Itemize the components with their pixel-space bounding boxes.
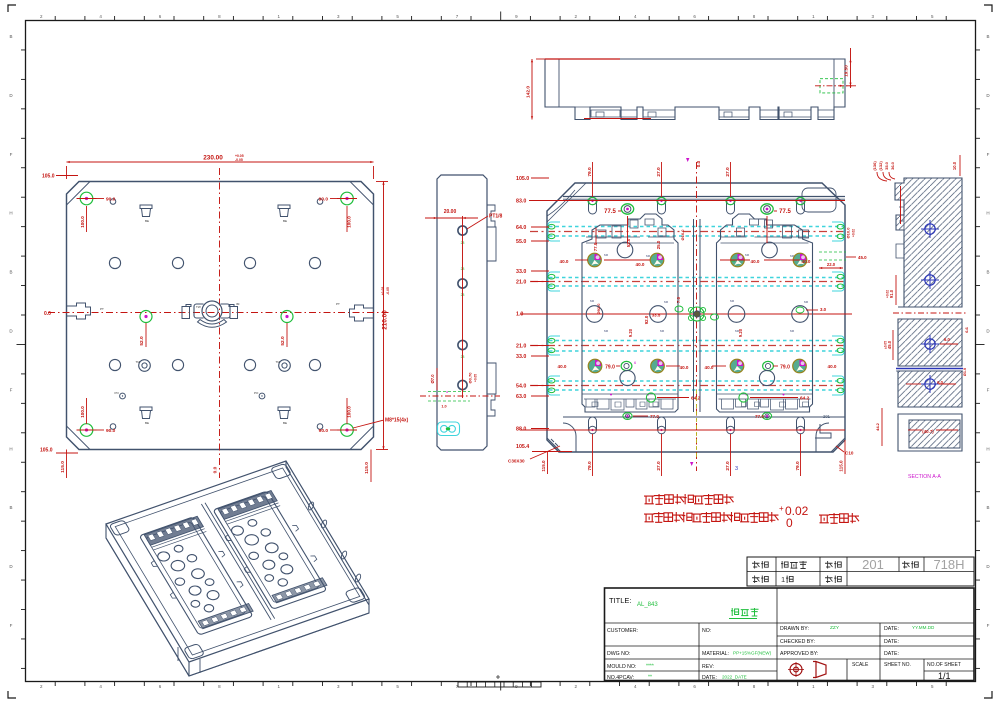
svg-text:6.0: 6.0 [944, 337, 950, 342]
svg-text:DWG NO:: DWG NO: [607, 651, 630, 657]
svg-text:YY.MM.DD: YY.MM.DD [912, 625, 935, 630]
svg-text:91.0: 91.0 [889, 289, 894, 298]
svg-text:F: F [10, 387, 13, 392]
svg-text:M6: M6 [804, 300, 808, 304]
svg-text:40.0: 40.0 [558, 364, 567, 369]
svg-text:22.0: 22.0 [827, 262, 836, 267]
svg-text:64.0: 64.0 [516, 225, 526, 231]
svg-text:79.0: 79.0 [587, 167, 593, 177]
svg-text:201: 201 [862, 557, 884, 572]
svg-text:27.0: 27.0 [656, 167, 662, 177]
svg-text:H: H [9, 211, 12, 216]
svg-text:27.0: 27.0 [656, 461, 662, 471]
svg-text:6.6: 6.6 [964, 326, 969, 332]
svg-text:M6: M6 [660, 329, 664, 333]
svg-text:**: ** [648, 675, 652, 681]
svg-text:M6: M6 [790, 254, 794, 258]
svg-text:0.0: 0.0 [213, 466, 219, 473]
svg-text:M6: M6 [790, 329, 794, 333]
svg-text:115.0: 115.0 [364, 462, 370, 474]
svg-text:B: B [986, 270, 989, 275]
svg-text:H: H [986, 211, 989, 216]
svg-text:F: F [987, 152, 990, 157]
svg-text:SHEET NO.: SHEET NO. [884, 662, 911, 668]
svg-text:7.0: 7.0 [676, 296, 681, 303]
svg-text:79.0: 79.0 [780, 364, 790, 370]
svg-text:(40.7): (40.7) [922, 429, 934, 434]
svg-text:3.0: 3.0 [820, 307, 827, 312]
svg-text:BE: BE [145, 219, 149, 223]
svg-text:40.0: 40.0 [802, 259, 811, 264]
svg-text:Ø1.0: Ø1.0 [963, 368, 967, 376]
svg-text:+0.05: +0.05 [381, 287, 385, 296]
svg-text:90.0: 90.0 [319, 428, 329, 434]
svg-text:115.0: 115.0 [541, 460, 546, 472]
svg-text:(136): (136) [872, 161, 877, 171]
svg-text:ZZY: ZZY [830, 625, 840, 631]
svg-text:115.0: 115.0 [839, 460, 844, 472]
svg-text:Ø0.70: Ø0.70 [468, 372, 473, 384]
svg-text:44.2: 44.2 [875, 422, 880, 431]
svg-text:Ø7.0: Ø7.0 [430, 374, 435, 384]
svg-text:M6: M6 [735, 329, 739, 333]
svg-text:35.0: 35.0 [884, 161, 889, 170]
svg-text:64.2: 64.2 [691, 396, 701, 402]
svg-text:F: F [987, 623, 990, 628]
svg-text:TITLE:: TITLE: [609, 596, 632, 605]
svg-text:33.0: 33.0 [516, 354, 526, 360]
svg-text:M6: M6 [590, 299, 594, 303]
svg-text:DATE:: DATE: [884, 651, 899, 657]
svg-text:27.0: 27.0 [725, 461, 731, 471]
svg-text:105.4: 105.4 [516, 444, 529, 450]
svg-text:DRAWN BY:: DRAWN BY: [780, 626, 809, 632]
svg-text:105.0: 105.0 [42, 174, 55, 180]
svg-text:45.0: 45.0 [858, 255, 867, 260]
svg-text:77.5: 77.5 [779, 209, 791, 215]
svg-text:PP+15%GF(NEW): PP+15%GF(NEW) [733, 651, 772, 656]
svg-text:79.0: 79.0 [795, 461, 801, 471]
svg-text:77.0: 77.0 [593, 242, 598, 251]
svg-text:100.0: 100.0 [347, 216, 352, 228]
svg-text:SCALE: SCALE [852, 662, 869, 668]
svg-text:(132): (132) [878, 161, 883, 171]
svg-text:DATE:: DATE: [884, 639, 899, 645]
svg-text:77.0: 77.0 [650, 414, 659, 419]
svg-text:54.0: 54.0 [516, 384, 526, 390]
svg-text:M6: M6 [604, 329, 608, 333]
svg-text:105.0: 105.0 [516, 176, 529, 182]
svg-text:33.0: 33.0 [516, 269, 526, 275]
svg-text:40.0: 40.0 [828, 364, 837, 369]
svg-text:27.0: 27.0 [725, 167, 731, 177]
svg-text:MATERIAL:: MATERIAL: [702, 651, 729, 657]
svg-text:B: B [986, 505, 989, 510]
svg-text:1/1: 1/1 [938, 671, 951, 681]
svg-text:PT: PT [100, 307, 104, 311]
svg-text:1.0: 1.0 [441, 405, 446, 409]
svg-text:B: B [9, 505, 12, 510]
svg-text:90.0: 90.0 [106, 197, 116, 203]
svg-text:3: 3 [735, 466, 738, 472]
svg-text:B: B [986, 34, 989, 39]
svg-text:M6: M6 [745, 253, 749, 257]
svg-text:NO:: NO: [702, 628, 711, 634]
svg-text:M6: M6 [646, 254, 650, 258]
svg-text:52.0: 52.0 [280, 336, 286, 346]
svg-text:21.0: 21.0 [516, 344, 526, 350]
svg-text:100.0: 100.0 [347, 406, 352, 418]
svg-text:CHECKED BY:: CHECKED BY: [780, 639, 815, 645]
svg-text:1.0: 1.0 [516, 312, 523, 318]
svg-text:BE: BE [283, 219, 287, 223]
svg-text:90.0: 90.0 [319, 197, 329, 203]
svg-text:40.0: 40.0 [680, 365, 689, 370]
svg-text:1: 1 [781, 575, 785, 584]
svg-text:DATE:: DATE: [702, 675, 717, 681]
svg-text:M6: M6 [730, 299, 734, 303]
svg-text:PO: PO [254, 391, 259, 395]
svg-text:IM: IM [236, 302, 240, 306]
svg-text:B: B [9, 270, 12, 275]
svg-text:77.0: 77.0 [755, 414, 764, 419]
svg-text:9.20: 9.20 [628, 328, 633, 337]
svg-text:SECTION A-A: SECTION A-A [908, 474, 941, 480]
svg-text:40.0: 40.0 [560, 259, 569, 264]
svg-text:0.0: 0.0 [44, 311, 51, 317]
svg-text:33.5: 33.5 [652, 313, 661, 318]
svg-text:79.0: 79.0 [587, 461, 593, 471]
svg-text:AL_843: AL_843 [637, 602, 658, 608]
svg-text:F: F [987, 387, 990, 392]
svg-text:B: B [9, 34, 12, 39]
svg-text:19.50: 19.50 [844, 65, 849, 77]
svg-text:BE: BE [145, 421, 149, 425]
svg-text:92.0: 92.0 [644, 315, 649, 324]
svg-text:55.0: 55.0 [516, 239, 526, 245]
svg-text:-0.05: -0.05 [235, 158, 243, 162]
svg-text:REV:: REV: [702, 664, 714, 670]
svg-text:****: **** [646, 664, 654, 670]
svg-text:TW: TW [196, 305, 201, 309]
svg-text:-0.05: -0.05 [386, 287, 390, 295]
svg-text:Ø10.0: Ø10.0 [846, 227, 851, 239]
svg-text:21.0: 21.0 [516, 280, 526, 286]
svg-text:40.0: 40.0 [751, 259, 760, 264]
svg-text:230.00: 230.00 [203, 155, 223, 162]
svg-text:NO.OF SHEET: NO.OF SHEET [927, 662, 961, 668]
svg-text:H: H [9, 446, 12, 451]
svg-text:0: 0 [786, 516, 793, 530]
svg-text:Ø10.0: Ø10.0 [680, 229, 685, 241]
svg-text:100.0: 100.0 [80, 406, 85, 418]
svg-text:F: F [10, 623, 13, 628]
svg-text:45.0: 45.0 [887, 340, 892, 349]
svg-text:90.0: 90.0 [106, 428, 116, 434]
svg-text:TM: TM [276, 360, 281, 364]
svg-text:C30X30: C30X30 [508, 459, 525, 464]
svg-text:210.00: 210.00 [382, 310, 389, 330]
svg-text:M6: M6 [604, 253, 608, 257]
svg-text:10.0: 10.0 [952, 161, 957, 170]
svg-text:64.2: 64.2 [800, 396, 810, 402]
svg-text:+0.02: +0.02 [886, 290, 890, 298]
svg-text:83.0: 83.0 [516, 199, 526, 205]
svg-text:C10: C10 [845, 451, 854, 456]
svg-text:APPROVED BY:: APPROVED BY: [780, 651, 818, 657]
svg-text:Ø92.0: Ø92.0 [596, 303, 601, 315]
svg-text:0.0: 0.0 [696, 160, 701, 167]
svg-text:36.0: 36.0 [890, 161, 895, 170]
svg-text:DATE:: DATE: [884, 626, 899, 632]
svg-text:115.0: 115.0 [60, 461, 66, 473]
svg-text:MOULD NO:: MOULD NO: [607, 664, 636, 670]
svg-text:20.00: 20.00 [444, 209, 457, 215]
svg-text:NO.4PCAV:: NO.4PCAV: [607, 675, 634, 681]
svg-text:88.0: 88.0 [516, 427, 526, 433]
svg-text:±0.05: ±0.05 [884, 341, 888, 349]
svg-text:F: F [10, 152, 13, 157]
svg-text:63.0: 63.0 [516, 394, 526, 400]
svg-text:201: 201 [823, 414, 831, 419]
svg-text:PT: PT [336, 302, 340, 306]
svg-text:PT1/8: PT1/8 [489, 214, 503, 220]
svg-text:100.0: 100.0 [80, 216, 85, 228]
svg-text:52.0: 52.0 [139, 336, 145, 346]
svg-text:142.0: 142.0 [526, 86, 532, 98]
svg-text:PO: PO [115, 391, 120, 395]
svg-text:79.0: 79.0 [605, 364, 615, 370]
svg-text:M6: M6 [664, 300, 668, 304]
svg-text:718H: 718H [933, 557, 964, 572]
svg-text:52.0: 52.0 [626, 238, 631, 247]
svg-text:H: H [986, 446, 989, 451]
svg-text:2022_DATE: 2022_DATE [722, 675, 747, 680]
svg-text:+0.05: +0.05 [474, 374, 478, 382]
svg-text:77.5: 77.5 [604, 209, 616, 215]
svg-text:a: a [446, 390, 448, 394]
svg-text:25.0: 25.0 [656, 240, 661, 249]
svg-text:105.0: 105.0 [40, 448, 53, 454]
svg-text:M8*15(4x): M8*15(4x) [385, 418, 409, 424]
svg-text:CUSTOMER:: CUSTOMER: [607, 628, 638, 634]
svg-text:BE: BE [283, 421, 287, 425]
svg-text:TM: TM [136, 360, 141, 364]
svg-text:+: + [779, 504, 784, 513]
svg-text:40.0: 40.0 [636, 262, 645, 267]
svg-text:+0.02: +0.02 [852, 229, 856, 237]
